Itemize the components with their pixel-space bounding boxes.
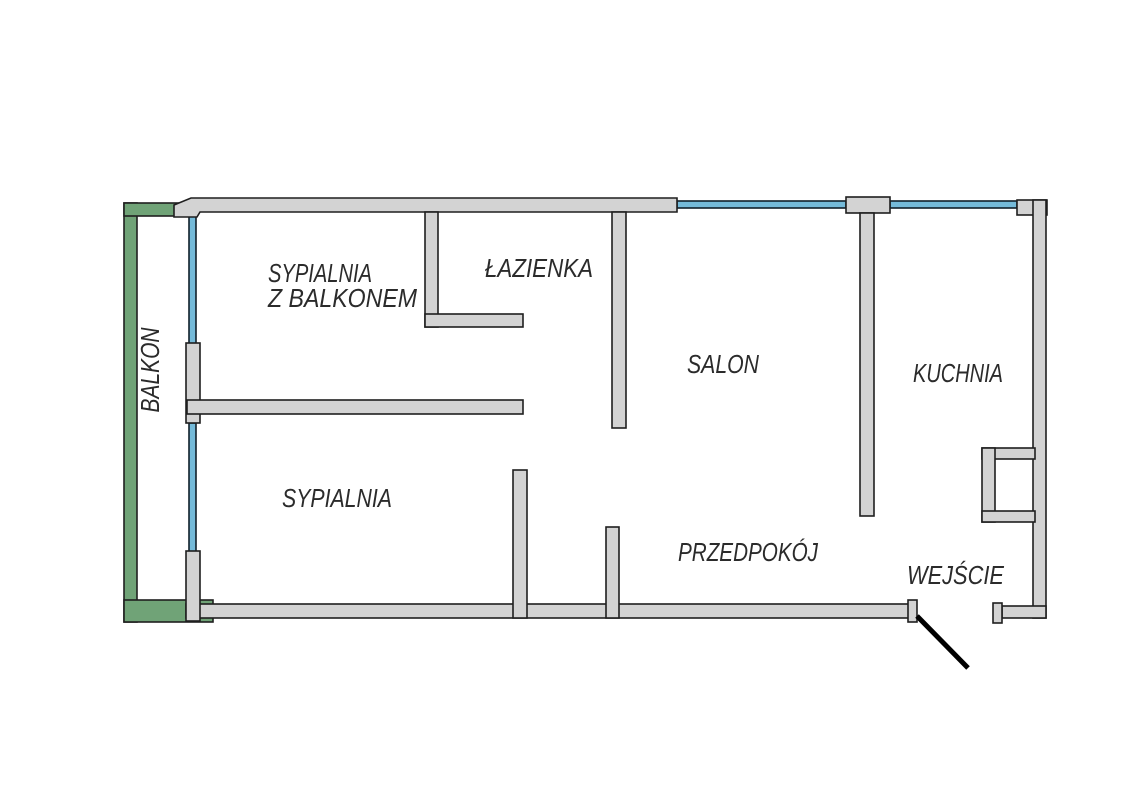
floor-plan-svg: BALKONSYPIALNIAZ BALKONEMŁAZIENKASALONKU…: [0, 0, 1123, 794]
window-bedroom-balcony-lower-window-segment: [189, 423, 196, 552]
wall-exterior-right: [1033, 200, 1046, 618]
wall-balcony-pier-lower: [186, 551, 200, 621]
wall-salon-kitchen: [860, 213, 874, 516]
wall-bathroom-right: [612, 212, 626, 428]
balcony-wall-top: [124, 203, 180, 216]
room-label-balkon: BALKON: [135, 327, 165, 412]
room-label-wejscie: WEJŚCIE: [907, 560, 1005, 590]
door-jamb-entry-right: [993, 603, 1002, 623]
wall-bathroom-bottom: [425, 314, 523, 327]
wall-entry-right: [1002, 606, 1046, 618]
wall-bedroom-divider: [187, 400, 523, 414]
wall-hall-stub-right: [606, 527, 619, 618]
entry-door-swing-door-icon: [917, 616, 968, 668]
room-label-kuchnia: KUCHNIA: [913, 358, 1003, 388]
floor-plan-page: BALKONSYPIALNIAZ BALKONEMŁAZIENKASALONKU…: [0, 0, 1123, 794]
room-label-sypialnia-z-balkonem-line2: Z BALKONEM: [267, 283, 417, 313]
door-jamb-entry-left: [908, 600, 917, 622]
room-label-przedpokoj: PRZEDPOKÓJ: [678, 537, 819, 567]
wall-hall-stub-left: [513, 470, 527, 618]
wall-exterior-bottom: [186, 604, 910, 618]
wall-top-cap-between-windows: [846, 197, 890, 213]
room-label-sypialnia: SYPIALNIA: [282, 483, 392, 513]
window-salon-window-segment: [677, 201, 846, 208]
window-kitchen-window-segment: [890, 201, 1017, 208]
wall-shaft-bottom: [982, 511, 1035, 522]
wall-bathroom-left: [425, 212, 438, 327]
room-label-salon: SALON: [687, 349, 759, 379]
room-label-lazienka: ŁAZIENKA: [485, 253, 593, 283]
window-bedroom-balcony-upper-window-segment: [189, 215, 196, 344]
